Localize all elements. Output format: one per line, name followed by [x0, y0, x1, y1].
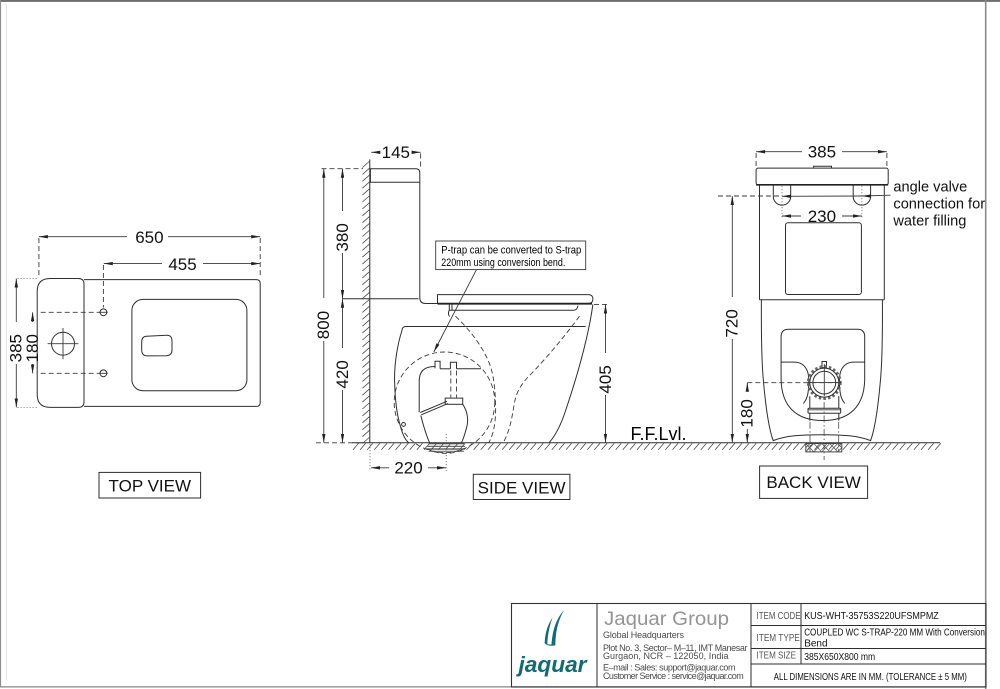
svg-text:ITEM SIZE: ITEM SIZE — [757, 651, 797, 662]
svg-text:455: 455 — [168, 255, 196, 274]
svg-text:420: 420 — [333, 360, 352, 388]
svg-text:380: 380 — [333, 223, 352, 251]
svg-text:KUS-WHT-35753S220UFSMPMZ: KUS-WHT-35753S220UFSMPMZ — [804, 611, 939, 622]
svg-text:720: 720 — [723, 309, 742, 337]
svg-text:Gurgaon, NCR – 122050, India: Gurgaon, NCR – 122050, India — [603, 651, 729, 661]
svg-text:405: 405 — [596, 365, 615, 393]
svg-text:SIDE VIEW: SIDE VIEW — [478, 478, 566, 497]
svg-text:180: 180 — [23, 334, 42, 362]
svg-text:angle valve: angle valve — [893, 180, 967, 196]
svg-text:145: 145 — [382, 143, 410, 162]
svg-text:COUPLED WC S-TRAP-220 MM With: COUPLED WC S-TRAP-220 MM With Conversion — [804, 628, 985, 639]
svg-text:jaquar: jaquar — [515, 652, 587, 677]
svg-text:Bend: Bend — [804, 639, 827, 650]
svg-text:TOP VIEW: TOP VIEW — [109, 477, 192, 496]
svg-text:180: 180 — [738, 399, 757, 427]
svg-text:water filling: water filling — [892, 214, 966, 230]
svg-text:ITEM TYPE: ITEM TYPE — [757, 633, 801, 644]
svg-text:650: 650 — [135, 228, 163, 247]
svg-text:Customer Service : service@jaq: Customer Service : service@jaquar.com — [603, 671, 744, 681]
svg-text:220mm using conversion bend.: 220mm using conversion bend. — [441, 257, 565, 269]
svg-text:F.F.Lvl.: F.F.Lvl. — [631, 424, 687, 444]
svg-text:connection for: connection for — [893, 197, 985, 213]
svg-text:385X650X800 mm: 385X650X800 mm — [804, 652, 875, 663]
svg-text:ALL DIMENSIONS ARE IN MM. (TOL: ALL DIMENSIONS ARE IN MM. (TOLERANCE ± 5… — [774, 672, 967, 683]
svg-text:Global Headquarters: Global Headquarters — [603, 630, 685, 640]
svg-text:Jaquar Group: Jaquar Group — [604, 608, 729, 630]
svg-text:385: 385 — [808, 143, 836, 162]
svg-text:BACK VIEW: BACK VIEW — [766, 473, 860, 492]
svg-text:230: 230 — [808, 207, 836, 226]
svg-text:800: 800 — [314, 311, 333, 339]
svg-text:ITEM CODE: ITEM CODE — [757, 611, 801, 622]
svg-text:P-trap can be converted to S-t: P-trap can be converted to S-trap — [441, 245, 581, 257]
svg-text:220: 220 — [394, 459, 422, 478]
